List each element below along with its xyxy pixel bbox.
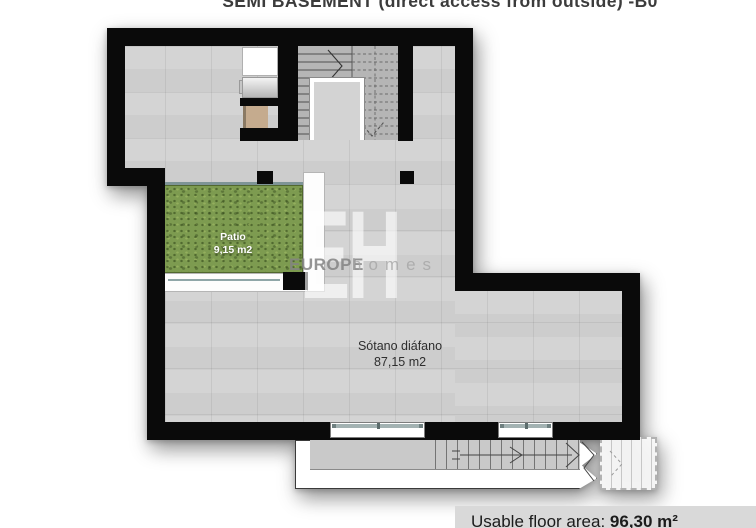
- usable-area-bar: Usable floor area: 96,30 m²: [455, 506, 756, 528]
- wall-right-upper: [455, 28, 473, 291]
- wall-closet-bottom: [240, 128, 298, 141]
- dashed-arrow: [610, 451, 622, 477]
- pillar-patio-top: [257, 171, 273, 184]
- sotano-area: 87,15 m2: [330, 354, 470, 370]
- exterior-stair-dashed-extension: [600, 437, 657, 490]
- closet-tan: [243, 106, 268, 128]
- floor-right-room: [455, 291, 622, 422]
- patio-label: Patio 9,15 m2: [168, 231, 298, 257]
- patio-sill-glass-line: [168, 279, 280, 281]
- floor-plan-page: SEMI BASEMENT (direct access from outsid…: [0, 0, 756, 528]
- wall-right-lower: [622, 273, 640, 440]
- wall-stair-left-stub: [278, 46, 298, 141]
- usable-area-text: Usable floor area: 96,30 m²: [471, 512, 678, 528]
- wall-stair-right-stub: [398, 46, 413, 141]
- exterior-stair-marks: [310, 440, 597, 489]
- stair-void-floor: [314, 82, 360, 140]
- patio-area: 9,15 m2: [168, 244, 298, 257]
- window-1: [330, 422, 425, 438]
- usable-area-value: 96,30 m²: [610, 512, 678, 528]
- appliance-white: [242, 47, 278, 76]
- appliance-gray: [242, 77, 278, 98]
- pillar-patio-bottom: [283, 272, 308, 290]
- floor-plan: EH EUROPE homes Patio 9,15 m2 Sótano diá…: [0, 0, 756, 528]
- sotano-name: Sótano diáfano: [330, 338, 470, 354]
- wall-top: [107, 28, 473, 46]
- appliance-handle: [239, 80, 243, 94]
- usable-area-label: Usable floor area:: [471, 512, 610, 528]
- patio-name: Patio: [168, 231, 298, 244]
- pillar-room: [400, 171, 414, 184]
- window-2: [498, 422, 553, 438]
- wall-step: [455, 273, 640, 291]
- wall-left-upper: [107, 28, 125, 186]
- patio-grass: [163, 185, 303, 273]
- sotano-label: Sótano diáfano 87,15 m2: [330, 338, 470, 370]
- wall-closet-separator: [240, 98, 278, 106]
- wall-left-lower: [147, 168, 165, 440]
